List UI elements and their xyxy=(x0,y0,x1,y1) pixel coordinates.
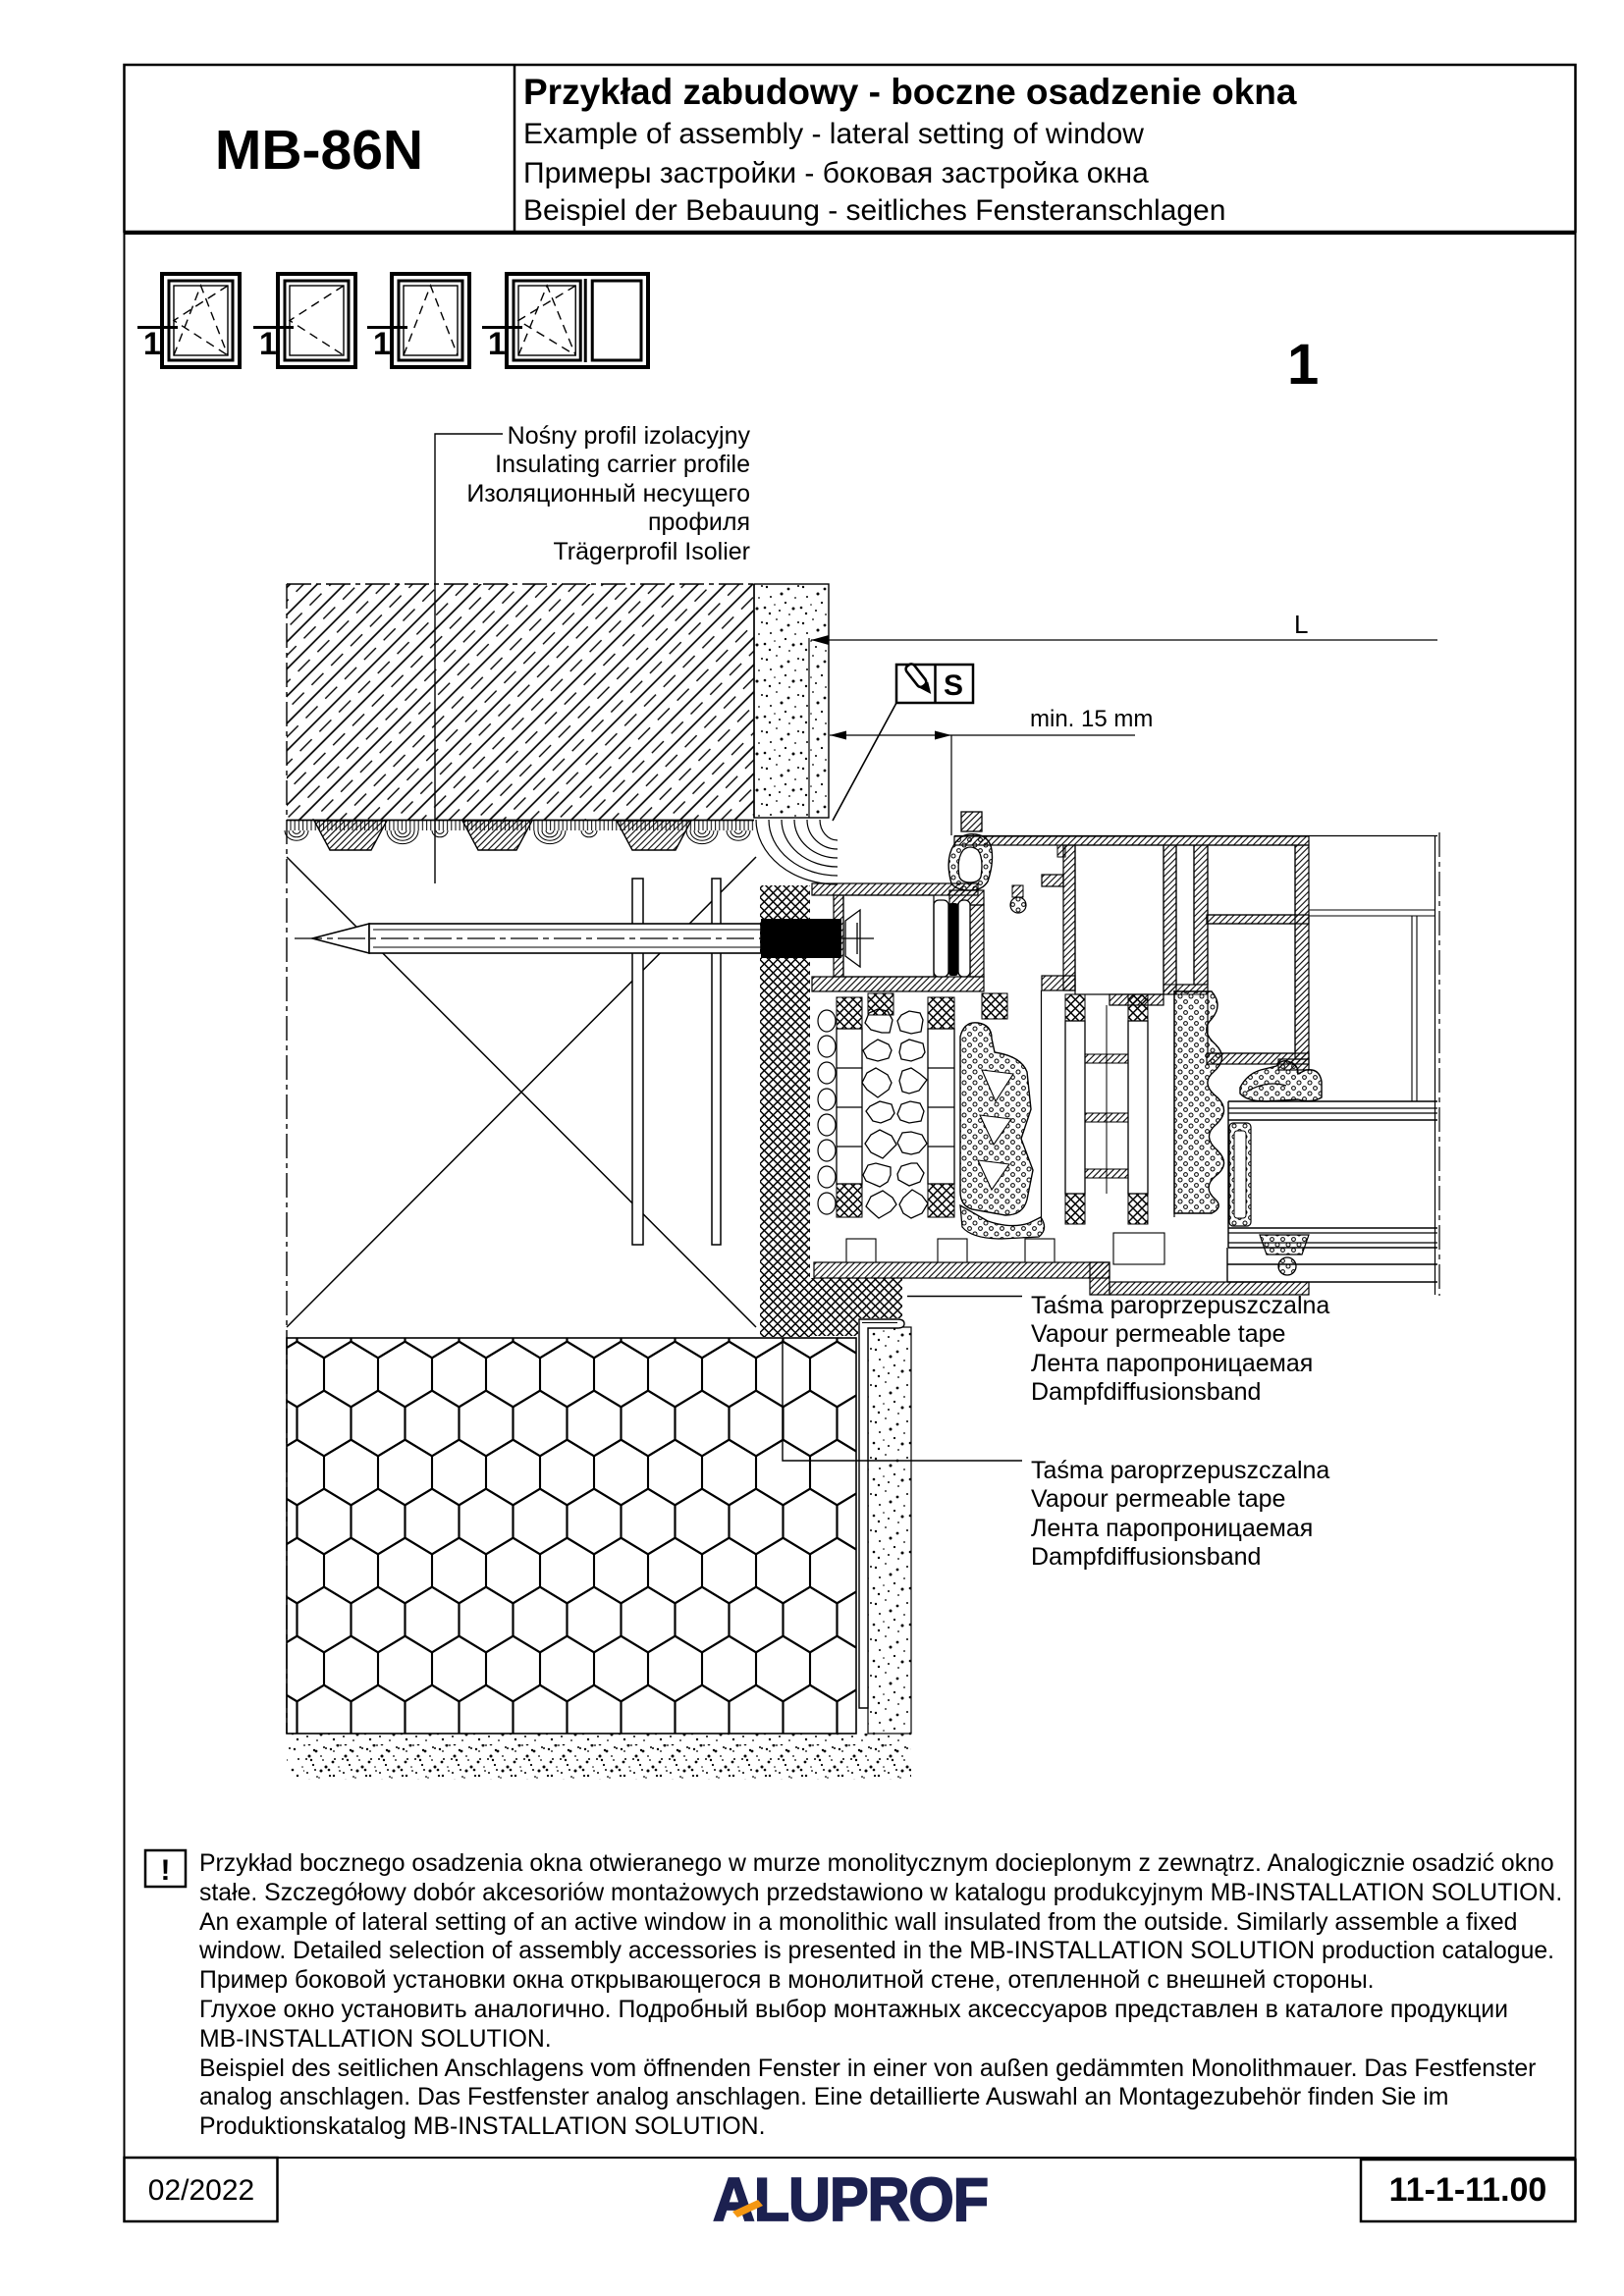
svg-text:Insulating carrier profile: Insulating carrier profile xyxy=(495,451,750,478)
svg-text:Produktionskatalog MB-INSTALLA: Produktionskatalog MB-INSTALLATION SOLUT… xyxy=(199,2113,765,2140)
svg-text:11-1-11.00: 11-1-11.00 xyxy=(1389,2171,1547,2209)
svg-text:Изоляционный несущего: Изоляционный несущего xyxy=(466,480,750,507)
svg-text:An example of lateral setting: An example of lateral setting of an acti… xyxy=(199,1909,1517,1936)
svg-text:MB-86N: MB-86N xyxy=(215,119,423,182)
svg-text:Przykład zabudowy - boczne osa: Przykład zabudowy - boczne osadzenie okn… xyxy=(523,72,1297,112)
svg-text:1: 1 xyxy=(143,326,161,361)
svg-text:L: L xyxy=(1294,610,1308,639)
svg-text:Vapour permeable tape: Vapour permeable tape xyxy=(1031,1320,1285,1348)
svg-text:Przykład bocznego osadzenia ok: Przykład bocznego osadzenia okna otwiera… xyxy=(199,1850,1554,1877)
svg-text:1: 1 xyxy=(488,326,506,361)
svg-text:1: 1 xyxy=(1287,333,1319,397)
svg-text:Dampfdiffusionsband: Dampfdiffusionsband xyxy=(1031,1378,1261,1406)
svg-text:Taśma paroprzepuszczalna: Taśma paroprzepuszczalna xyxy=(1031,1457,1329,1484)
svg-text:Глухое окно установить аналоги: Глухое окно установить аналогично. Подро… xyxy=(199,1997,1508,2023)
svg-text:stałe. Szczegółowy dobór akces: stałe. Szczegółowy dobór akcesoriów mont… xyxy=(199,1880,1562,1906)
svg-text:Vapour permeable tape: Vapour permeable tape xyxy=(1031,1485,1285,1513)
svg-text:профиля: профиля xyxy=(648,508,750,536)
svg-text:Лента паропроницаемая: Лента паропроницаемая xyxy=(1031,1515,1313,1542)
svg-text:ALUPROF: ALUPROF xyxy=(713,2166,988,2234)
svg-text:analog anschlagen. Das Festfen: analog anschlagen. Das Festfenster analo… xyxy=(199,2084,1448,2110)
svg-text:Dampfdiffusionsband: Dampfdiffusionsband xyxy=(1031,1543,1261,1571)
svg-text:Trägerprofil Isolier: Trägerprofil Isolier xyxy=(553,538,750,565)
svg-text:!: ! xyxy=(161,1854,171,1887)
svg-text:Beispiel des seitlichen Anschl: Beispiel des seitlichen Anschlagens vom … xyxy=(199,2056,1536,2082)
svg-text:1: 1 xyxy=(259,326,277,361)
svg-text:Example of assembly - lateral: Example of assembly - lateral setting of… xyxy=(523,118,1144,150)
svg-text:MB-INSTALLATION SOLUTION.: MB-INSTALLATION SOLUTION. xyxy=(199,2026,552,2053)
svg-text:window. Detailed selection of: window. Detailed selection of assembly a… xyxy=(198,1938,1554,1964)
svg-text:02/2022: 02/2022 xyxy=(148,2174,254,2207)
svg-text:Примеры застройки - боковая за: Примеры застройки - боковая застройка ок… xyxy=(523,157,1149,189)
svg-text:min. 15 mm: min. 15 mm xyxy=(1030,706,1153,732)
svg-text:Nośny profil izolacyjny: Nośny profil izolacyjny xyxy=(508,422,751,450)
svg-text:Пример боковой установки окна: Пример боковой установки окна открывающе… xyxy=(199,1967,1375,1994)
svg-text:1: 1 xyxy=(373,326,391,361)
svg-text:Лента паропроницаемая: Лента паропроницаемая xyxy=(1031,1350,1313,1377)
svg-text:Beispiel der Bebauung - seitli: Beispiel der Bebauung - seitliches Fenst… xyxy=(523,194,1225,227)
svg-text:Taśma paroprzepuszczalna: Taśma paroprzepuszczalna xyxy=(1031,1292,1329,1319)
svg-text:S: S xyxy=(944,669,963,702)
